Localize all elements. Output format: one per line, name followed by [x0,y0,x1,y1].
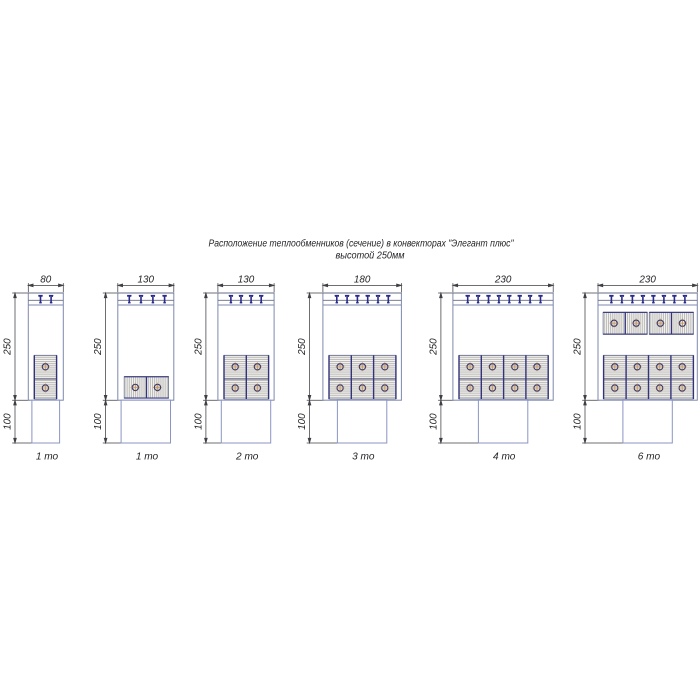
svg-text:100: 100 [3,413,14,430]
svg-text:6 то: 6 то [638,451,661,462]
svg-text:130: 130 [238,274,255,285]
svg-text:250: 250 [194,338,205,356]
svg-text:100: 100 [429,413,440,430]
svg-text:3 то: 3 то [352,451,375,462]
svg-text:250: 250 [429,338,440,356]
svg-text:100: 100 [93,413,104,430]
svg-text:4 то: 4 то [493,451,516,462]
svg-text:1 то: 1 то [136,451,159,462]
svg-text:Расположение теплообменников (: Расположение теплообменников (сечение) в… [209,238,514,250]
svg-text:100: 100 [297,413,308,430]
svg-text:250: 250 [573,338,584,356]
svg-text:80: 80 [40,274,51,285]
svg-text:100: 100 [194,413,205,430]
svg-text:250: 250 [93,338,104,356]
svg-text:250: 250 [3,338,14,356]
svg-text:1 то: 1 то [36,451,59,462]
svg-text:130: 130 [138,274,155,285]
svg-text:180: 180 [354,274,371,285]
svg-text:230: 230 [638,274,656,285]
svg-text:250: 250 [297,338,308,356]
svg-text:2 то: 2 то [235,451,259,462]
svg-text:100: 100 [573,413,584,430]
svg-text:230: 230 [494,274,512,285]
svg-text:высотой 250мм: высотой 250мм [336,251,405,262]
